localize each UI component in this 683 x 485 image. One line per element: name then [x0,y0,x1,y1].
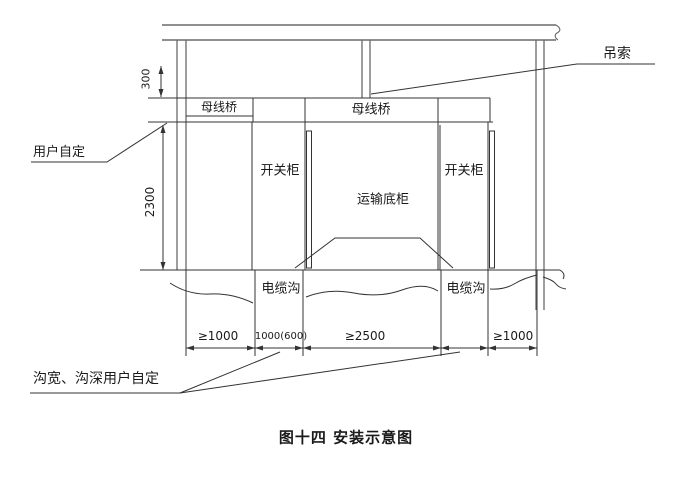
trench-note-leader-2 [180,352,460,393]
busbar-bridge-left-label: 母线桥 [201,101,237,113]
sling-leader [371,64,655,94]
right-side-panel [490,131,495,268]
user-defined-label: 用户自定 [33,146,85,159]
arrow-b186 [186,346,194,351]
dim-2300: 2300 [144,187,156,218]
left-column [177,40,186,270]
arrow-2300-down [161,262,166,270]
arrow-b537 [529,346,537,351]
leader-lines [30,64,655,393]
arrow-300-up [159,66,164,74]
dim-left-clearance: ≥1000 [198,330,239,342]
dim-right-clearance: ≥1000 [493,330,534,342]
figure-caption: 图十四 安装示意图 [279,431,413,446]
beam-break-mark [555,25,560,40]
transport-base-label: 运输底柜 [357,194,409,207]
transport-base-notch [295,238,453,268]
cable-trench-right-label: 电缆沟 [446,283,485,296]
cable-trench-left-label: 电缆沟 [261,283,300,296]
diagram-linework [0,0,683,485]
installation-diagram: 吊索 母线桥 母线桥 用户自定 开关柜 开关柜 运输底柜 电缆沟 电缆沟 沟宽、… [0,0,683,485]
middle-column [362,40,370,98]
crane-beam [162,25,560,40]
trench-note-label: 沟宽、沟深用户自定 [33,372,159,386]
busbar-bridge-center-label: 母线桥 [351,104,390,117]
arrow-300-down [159,89,164,97]
switchgear-left-label: 开关柜 [260,165,299,178]
ground-wave-middle [306,286,438,297]
ground [140,270,566,356]
left-side-panel [307,131,312,268]
busbar-bridge-band [148,98,493,122]
sling-label: 吊索 [603,47,631,61]
ground-wave-far-right [543,277,566,289]
ground-wave-left [170,283,253,303]
dim-left-trench-width: 1000(600) [255,332,307,342]
dim-300: 300 [141,69,152,90]
ground-break-mark [560,270,564,279]
trench-note-leader-1 [180,352,280,393]
ground-wave-right [490,275,537,289]
switchgear-right-label: 开关柜 [444,165,483,178]
dim-front-clearance: ≥2500 [345,330,386,342]
